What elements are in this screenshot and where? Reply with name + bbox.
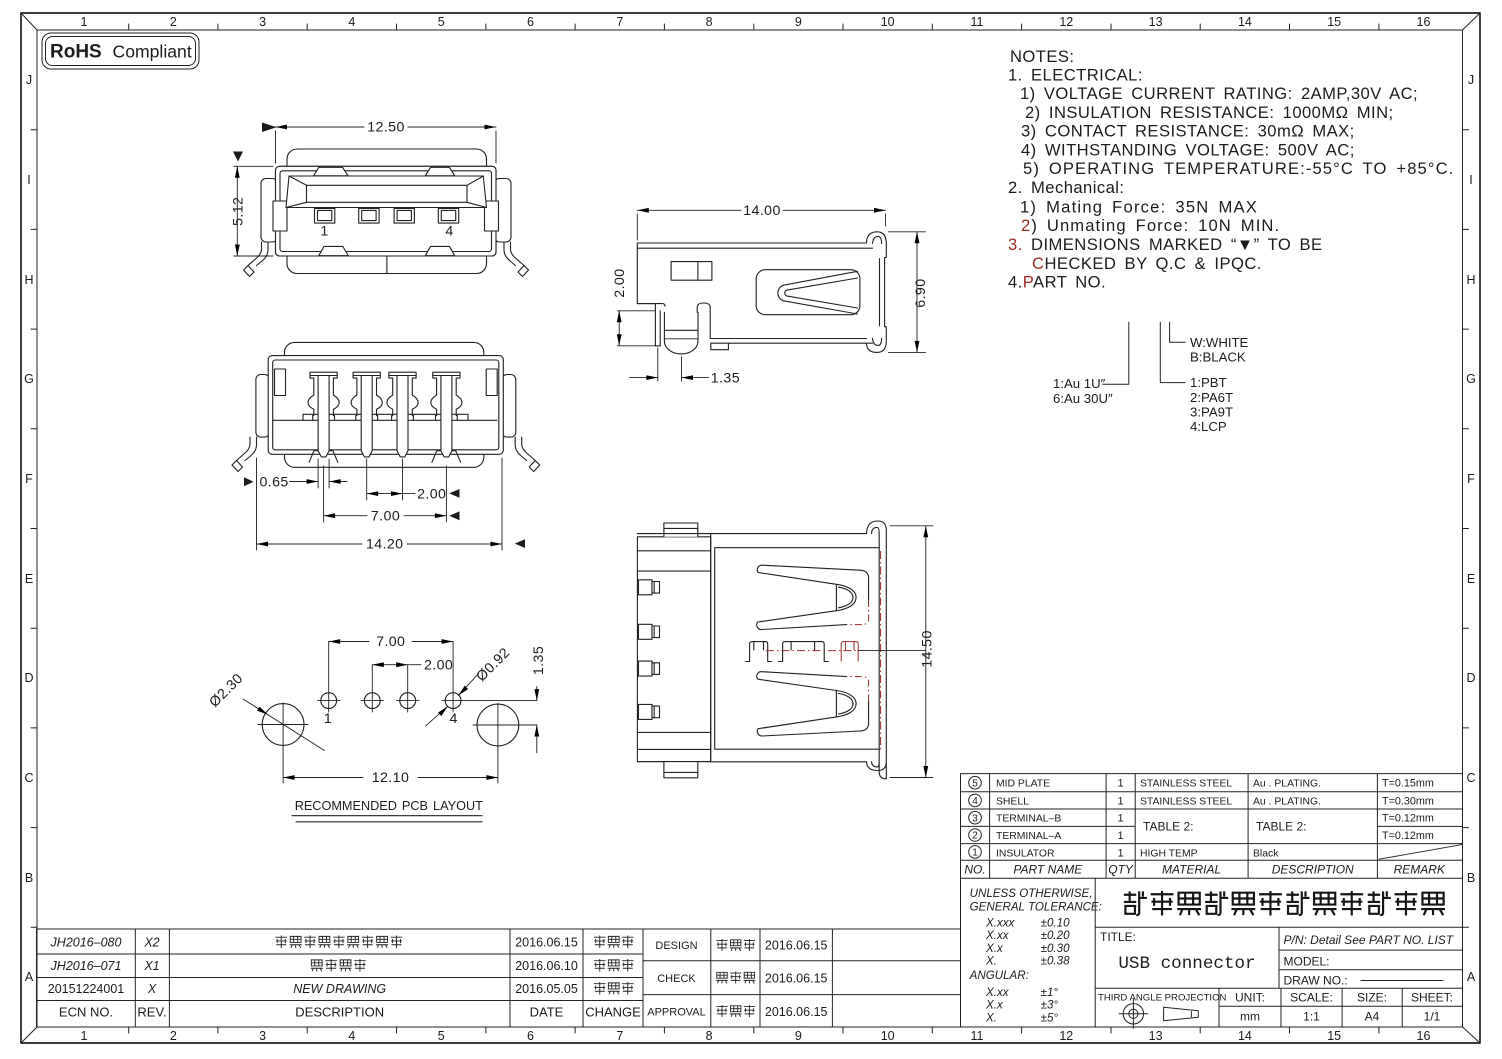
svg-text:W:WHITE: W:WHITE (1190, 335, 1249, 350)
svg-text:RoHS: RoHS (50, 42, 102, 63)
svg-text:CHANGE: CHANGE (585, 1004, 641, 1019)
svg-text:3: 3 (259, 15, 266, 29)
svg-text:6: 6 (527, 15, 534, 29)
svg-text:12: 12 (1059, 15, 1073, 29)
svg-text:GENERAL TOLERANCE:: GENERAL TOLERANCE: (970, 901, 1102, 914)
svg-text:B: B (1467, 871, 1475, 885)
svg-text:3. DIMENSIONS MARKED “▼” TO BE: 3. DIMENSIONS MARKED “▼” TO BE (1008, 235, 1323, 254)
svg-text:X.xxx: X.xxx (985, 917, 1016, 930)
svg-text:5) OPERATING TEMPERATURE:-55°C: 5) OPERATING TEMPERATURE:-55°C TO +85°C. (1023, 159, 1454, 178)
svg-text:T=0.12mm: T=0.12mm (1382, 813, 1434, 825)
svg-text:DESCRIPTION: DESCRIPTION (295, 1004, 384, 1019)
svg-text:NEW DRAWING: NEW DRAWING (293, 982, 386, 996)
svg-text:7: 7 (616, 15, 623, 29)
svg-text:NO.: NO. (964, 863, 985, 877)
svg-text:3: 3 (972, 813, 978, 824)
svg-text:MID PLATE: MID PLATE (996, 779, 1050, 790)
svg-text:C: C (24, 771, 33, 785)
svg-text:13: 13 (1149, 1029, 1163, 1043)
svg-text:X1: X1 (143, 959, 159, 973)
svg-text:X.x: X.x (985, 942, 1004, 955)
svg-text:mm: mm (1240, 1010, 1260, 1024)
svg-text:10: 10 (881, 1029, 895, 1043)
svg-text:1: 1 (324, 711, 332, 727)
svg-text:1/1: 1/1 (1424, 1010, 1441, 1024)
svg-text:15: 15 (1327, 1029, 1341, 1043)
svg-text:X.: X. (985, 1012, 997, 1025)
svg-text:B:BLACK: B:BLACK (1190, 350, 1246, 365)
svg-text:5.12: 5.12 (231, 197, 247, 226)
svg-text:THIRD ANGLE PROJECTION: THIRD ANGLE PROJECTION (1098, 993, 1227, 1004)
svg-text:±1°: ±1° (1041, 986, 1059, 999)
svg-text:8: 8 (706, 1029, 713, 1043)
svg-text:6:Au 30U″: 6:Au 30U″ (1053, 391, 1113, 406)
svg-text:ANGULAR:: ANGULAR: (969, 969, 1029, 982)
svg-text:F: F (1467, 472, 1475, 486)
svg-text:±5°: ±5° (1041, 1012, 1059, 1025)
svg-text:2016.06.10: 2016.06.10 (515, 959, 578, 973)
svg-text:T=0.30mm: T=0.30mm (1382, 795, 1434, 807)
svg-text:1) VOLTAGE CURRENT RATING: 2AM: 1) VOLTAGE CURRENT RATING: 2AMP,30V AC; (1020, 84, 1418, 103)
svg-text:5: 5 (972, 778, 978, 789)
svg-text:1: 1 (972, 848, 978, 859)
svg-text:D: D (24, 671, 33, 685)
svg-text:5: 5 (438, 1029, 445, 1043)
svg-text:±0.30: ±0.30 (1041, 942, 1070, 955)
svg-text:1:1: 1:1 (1303, 1010, 1320, 1024)
svg-text:X: X (147, 982, 157, 996)
svg-text:J: J (1468, 73, 1474, 87)
svg-text:CHECK: CHECK (657, 973, 696, 985)
svg-text:DATE: DATE (530, 1004, 564, 1019)
svg-text:1: 1 (1118, 795, 1124, 807)
svg-text:MATERIAL: MATERIAL (1162, 863, 1221, 877)
svg-text:4) WITHSTANDING VOLTAGE: 500V: 4) WITHSTANDING VOLTAGE: 500V AC; (1021, 141, 1355, 160)
svg-text:9: 9 (795, 1029, 802, 1043)
svg-text:2016.06.15: 2016.06.15 (765, 939, 828, 953)
svg-text:6: 6 (527, 1029, 534, 1043)
svg-text:Au . PLATING.: Au . PLATING. (1253, 796, 1321, 807)
svg-text:USB connector: USB connector (1118, 954, 1255, 974)
svg-text:STAINLESS STEEL: STAINLESS STEEL (1140, 796, 1232, 807)
svg-text:4.PART NO.: 4.PART NO. (1008, 273, 1106, 292)
svg-text:SCALE:: SCALE: (1290, 991, 1333, 1005)
svg-text:14.00: 14.00 (743, 203, 781, 219)
svg-text:2) INSULATION RESISTANCE: 1000: 2) INSULATION RESISTANCE: 1000MΩ MIN; (1025, 103, 1394, 122)
svg-text:12.10: 12.10 (372, 770, 410, 786)
svg-text:13: 13 (1149, 15, 1163, 29)
svg-text:STAINLESS STEEL: STAINLESS STEEL (1140, 779, 1232, 790)
svg-text:11: 11 (971, 15, 984, 29)
svg-text:1: 1 (1118, 830, 1124, 842)
svg-text:INSULATOR: INSULATOR (996, 848, 1055, 859)
svg-text:RECOMMENDED PCB LAYOUT: RECOMMENDED PCB LAYOUT (295, 799, 483, 813)
svg-text:TABLE 2:: TABLE 2: (1256, 820, 1306, 834)
svg-text:14: 14 (1238, 15, 1252, 29)
svg-text:1: 1 (320, 224, 328, 240)
svg-text:±0.20: ±0.20 (1041, 929, 1070, 942)
svg-text:1: 1 (81, 15, 88, 29)
svg-text:7.00: 7.00 (371, 508, 400, 524)
svg-text:6.90: 6.90 (913, 278, 929, 307)
svg-text:SIZE:: SIZE: (1357, 991, 1387, 1005)
svg-text:H: H (24, 273, 33, 287)
svg-text:2: 2 (170, 1029, 177, 1043)
svg-text:9: 9 (795, 15, 802, 29)
svg-text:3: 3 (259, 1029, 266, 1043)
svg-text:11: 11 (971, 1029, 984, 1043)
svg-text:4: 4 (348, 1029, 355, 1043)
svg-text:14.50: 14.50 (920, 630, 936, 668)
svg-text:E: E (1467, 572, 1475, 586)
svg-text:12: 12 (1059, 1029, 1073, 1043)
svg-text:7: 7 (616, 1029, 623, 1043)
svg-text:4: 4 (972, 796, 978, 807)
svg-text:B: B (25, 871, 33, 885)
svg-text:0.65: 0.65 (260, 474, 289, 490)
svg-text:12.50: 12.50 (367, 120, 405, 136)
svg-text:±0.38: ±0.38 (1041, 955, 1070, 968)
svg-text:X.x: X.x (985, 999, 1004, 1012)
svg-text:2016.06.15: 2016.06.15 (765, 972, 828, 986)
svg-text:JH2016–080: JH2016–080 (50, 935, 122, 949)
svg-text:H: H (1466, 273, 1475, 287)
svg-text:D: D (1466, 671, 1475, 685)
svg-text:4: 4 (449, 711, 457, 727)
svg-text:2.00: 2.00 (424, 658, 453, 674)
svg-text:A4: A4 (1365, 1010, 1380, 1024)
svg-text:DRAW NO.:: DRAW NO.: (1284, 974, 1348, 988)
svg-text:JH2016–071: JH2016–071 (50, 959, 122, 973)
svg-text:UNIT:: UNIT: (1235, 991, 1265, 1005)
svg-text:I: I (1469, 173, 1472, 187)
svg-text:T=0.12mm: T=0.12mm (1382, 830, 1434, 842)
svg-text:X.xx: X.xx (985, 986, 1010, 999)
svg-text:1: 1 (81, 1029, 88, 1043)
svg-text:A: A (1467, 970, 1476, 984)
svg-text:TERMINAL–A: TERMINAL–A (996, 831, 1061, 842)
svg-text:3) CONTACT RESISTANCE: 30mΩ MA: 3) CONTACT RESISTANCE: 30mΩ MAX; (1021, 122, 1355, 141)
svg-text:C: C (1466, 771, 1475, 785)
svg-text:APPROVAL: APPROVAL (647, 1007, 706, 1019)
svg-text:1:Au 1U″: 1:Au 1U″ (1053, 376, 1106, 391)
svg-text:2016.05.05: 2016.05.05 (515, 982, 578, 996)
svg-text:2:PA6T: 2:PA6T (1190, 390, 1233, 405)
svg-text:1:PBT: 1:PBT (1190, 375, 1227, 390)
svg-text:J: J (26, 73, 32, 87)
svg-text:X.: X. (985, 955, 997, 968)
svg-text:T=0.15mm: T=0.15mm (1382, 778, 1434, 790)
svg-text:Au . PLATING.: Au . PLATING. (1253, 779, 1321, 790)
svg-text:NOTES:: NOTES: (1010, 47, 1074, 66)
svg-text:4: 4 (445, 224, 453, 240)
svg-text:QTY: QTY (1108, 863, 1134, 877)
svg-text:MODEL:: MODEL: (1284, 955, 1330, 969)
svg-text:Black: Black (1253, 848, 1279, 859)
svg-text:16: 16 (1417, 15, 1431, 29)
svg-text:SHELL: SHELL (996, 796, 1029, 807)
svg-text:TERMINAL–B: TERMINAL–B (996, 814, 1061, 825)
svg-text:8: 8 (706, 15, 713, 29)
svg-text:10: 10 (881, 15, 895, 29)
svg-text:1. ELECTRICAL:: 1. ELECTRICAL: (1008, 66, 1143, 85)
svg-text:4: 4 (348, 15, 355, 29)
svg-text:2. Mechanical:: 2. Mechanical: (1008, 178, 1125, 197)
svg-text:A: A (25, 970, 34, 984)
svg-text:Compliant: Compliant (113, 42, 192, 62)
svg-text:1.35: 1.35 (711, 371, 740, 387)
svg-text:E: E (25, 572, 33, 586)
svg-text:G: G (1466, 372, 1476, 386)
svg-text:G: G (24, 372, 34, 386)
svg-text:2) Unmating Force: 10N MIN.: 2) Unmating Force: 10N MIN. (1021, 216, 1280, 235)
svg-text:X.xx: X.xx (985, 929, 1010, 942)
svg-text:2.00: 2.00 (612, 268, 628, 297)
svg-text:REMARK: REMARK (1394, 863, 1446, 877)
svg-text:7.00: 7.00 (376, 634, 405, 650)
svg-text:5: 5 (438, 15, 445, 29)
svg-text:2016.06.15: 2016.06.15 (765, 1005, 828, 1019)
svg-text:TABLE 2:: TABLE 2: (1143, 820, 1193, 834)
svg-text:1) Mating Force: 35N MAX: 1) Mating Force: 35N MAX (1020, 198, 1258, 217)
svg-text:14.20: 14.20 (366, 537, 404, 553)
svg-text:16: 16 (1417, 1029, 1431, 1043)
svg-text:REV.: REV. (137, 1004, 166, 1019)
svg-text:1.35: 1.35 (531, 646, 547, 675)
svg-text:X2: X2 (143, 935, 159, 949)
svg-text:1: 1 (1118, 813, 1124, 825)
svg-text:DESCRIPTION: DESCRIPTION (1272, 863, 1354, 877)
svg-text:PART NAME: PART NAME (1013, 863, 1083, 877)
svg-text:3:PA9T: 3:PA9T (1190, 405, 1233, 420)
svg-text:ECN NO.: ECN NO. (59, 1004, 113, 1019)
svg-text:TITLE:: TITLE: (1100, 930, 1136, 944)
svg-text:20151224001: 20151224001 (48, 982, 125, 996)
svg-text:15: 15 (1327, 15, 1341, 29)
svg-text:4:LCP: 4:LCP (1190, 419, 1227, 434)
svg-text:CHECKED BY Q.C & IPQC.: CHECKED BY Q.C & IPQC. (1032, 254, 1262, 273)
svg-text:F: F (25, 472, 33, 486)
svg-text:SHEET:: SHEET: (1411, 991, 1453, 1005)
svg-text:2.00: 2.00 (417, 486, 446, 502)
svg-text:2: 2 (170, 15, 177, 29)
svg-text:DESIGN: DESIGN (655, 940, 697, 952)
svg-text:UNLESS OTHERWISE,: UNLESS OTHERWISE, (970, 887, 1093, 900)
svg-text:I: I (27, 173, 30, 187)
svg-text:1: 1 (1118, 847, 1124, 859)
svg-text:2016.06.15: 2016.06.15 (515, 935, 578, 949)
svg-text:2: 2 (972, 831, 978, 842)
svg-text:±0.10: ±0.10 (1041, 917, 1070, 930)
svg-text:P/N: Detail See PART NO. LIST: P/N: Detail See PART NO. LIST (1284, 933, 1455, 947)
svg-text:14: 14 (1238, 1029, 1252, 1043)
svg-text:±3°: ±3° (1041, 999, 1059, 1012)
svg-text:1: 1 (1118, 778, 1124, 790)
svg-text:HIGH TEMP: HIGH TEMP (1140, 848, 1198, 859)
